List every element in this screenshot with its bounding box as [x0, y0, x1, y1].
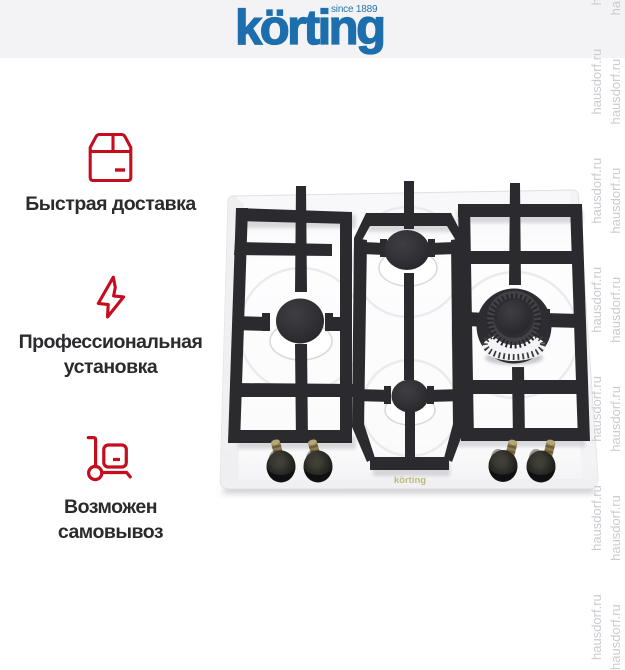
svg-text:körting: körting: [394, 475, 426, 486]
